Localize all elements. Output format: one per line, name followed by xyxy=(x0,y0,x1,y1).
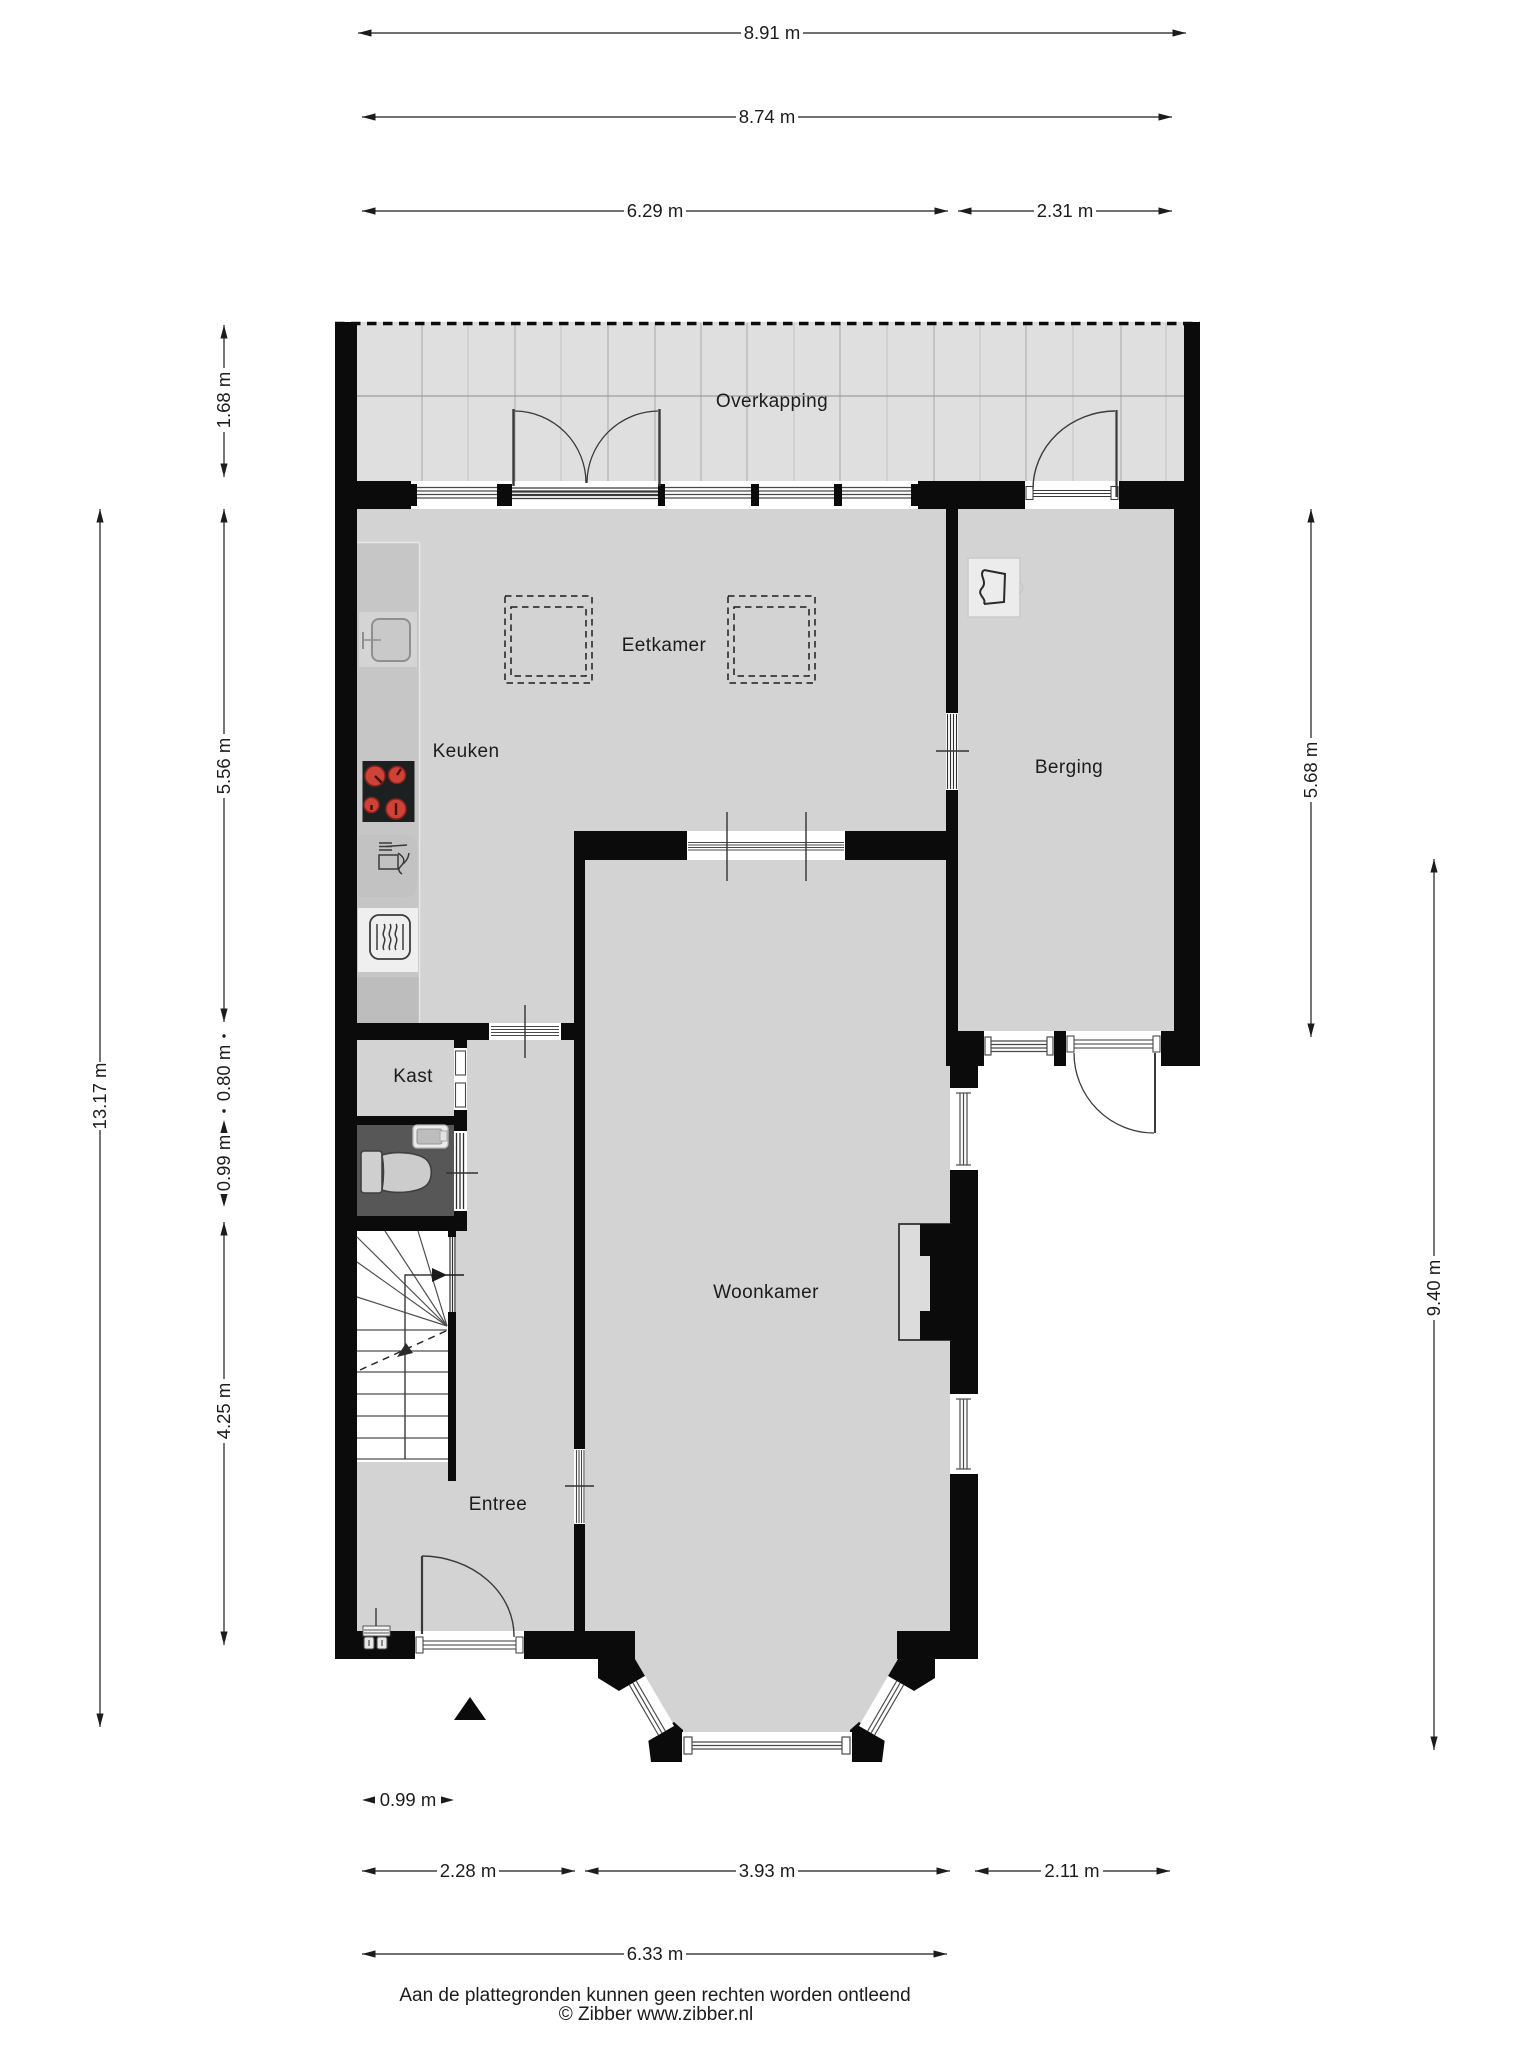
svg-text:4.25 m: 4.25 m xyxy=(213,1383,234,1440)
svg-text:Keuken: Keuken xyxy=(433,741,500,762)
svg-text:8.91 m: 8.91 m xyxy=(744,22,801,43)
svg-text:Woonkamer: Woonkamer xyxy=(713,1282,819,1303)
svg-text:Berging: Berging xyxy=(1035,757,1103,778)
svg-text:Overkapping: Overkapping xyxy=(716,391,828,412)
svg-text:0.80 m: 0.80 m xyxy=(213,1045,234,1102)
svg-text:6.33 m: 6.33 m xyxy=(627,1943,684,1964)
svg-text:Kast: Kast xyxy=(393,1066,433,1087)
svg-text:8.74 m: 8.74 m xyxy=(739,106,796,127)
svg-text:3.93 m: 3.93 m xyxy=(739,1860,796,1881)
svg-text:2.11 m: 2.11 m xyxy=(1044,1860,1099,1881)
svg-text:© Zibber www.zibber.nl: © Zibber www.zibber.nl xyxy=(559,2004,754,2025)
svg-text:6.29 m: 6.29 m xyxy=(627,200,684,221)
svg-text:5.68 m: 5.68 m xyxy=(1300,742,1321,799)
svg-text:2.31 m: 2.31 m xyxy=(1037,200,1094,221)
svg-text:0.99 m: 0.99 m xyxy=(213,1135,234,1192)
svg-text:2.28 m: 2.28 m xyxy=(440,1860,497,1881)
svg-text:Entree: Entree xyxy=(469,1494,527,1515)
svg-text:0.99 m: 0.99 m xyxy=(380,1789,437,1810)
svg-text:13.17 m: 13.17 m xyxy=(89,1063,110,1130)
svg-text:5.56 m: 5.56 m xyxy=(213,738,234,795)
svg-text:Eetkamer: Eetkamer xyxy=(622,635,707,656)
svg-text:Aan de plattegronden kunnen ge: Aan de plattegronden kunnen geen rechten… xyxy=(399,1985,910,2006)
svg-text:9.40 m: 9.40 m xyxy=(1423,1260,1444,1317)
svg-text:1.68 m: 1.68 m xyxy=(213,372,234,429)
